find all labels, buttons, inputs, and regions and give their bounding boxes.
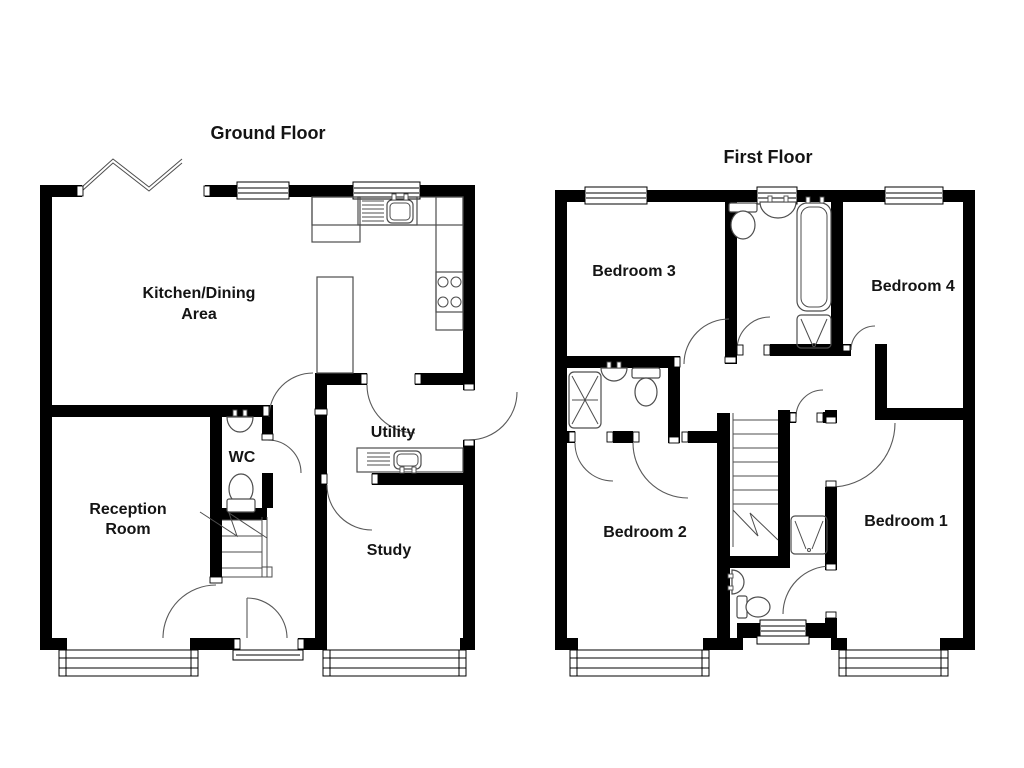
door-swing-bedroom3 <box>684 319 729 364</box>
bay-window <box>59 650 198 676</box>
floorplan-drawing: Ground Floor Kitchen/Dining Area Recepti… <box>0 0 1024 768</box>
ground-walls <box>40 185 475 650</box>
door-swing-wc <box>268 440 301 473</box>
door-swing-bedroom4 <box>851 326 875 350</box>
door-swing-reception <box>163 585 216 638</box>
room-label-reception-line2: Room <box>105 521 150 538</box>
appliance <box>312 197 360 242</box>
shower-icon <box>791 516 827 554</box>
door-swing-bedroom1 <box>831 423 895 487</box>
stairs-break-line <box>733 510 778 540</box>
shower-icon <box>797 315 831 348</box>
floorplan-canvas: Ground Floor Kitchen/Dining Area Recepti… <box>0 0 1024 768</box>
bay-window <box>323 650 466 676</box>
room-label-utility: Utility <box>371 424 416 441</box>
ground-floor-title: Ground Floor <box>211 123 326 143</box>
room-label-bedroom3: Bedroom 3 <box>592 263 676 280</box>
window-sill <box>757 636 809 644</box>
room-label-bedroom4: Bedroom 4 <box>871 278 955 295</box>
toilet-icon <box>227 474 255 512</box>
bath-icon <box>797 197 831 311</box>
room-label-wc: WC <box>229 449 256 466</box>
wall-cap <box>204 186 210 196</box>
door-swing-kitchen <box>269 373 313 417</box>
toilet-icon <box>632 368 660 406</box>
door-swing-study <box>327 485 372 530</box>
first-floor-plan: First Floor Bedroom 3 Bedroom 4 Bedroom … <box>555 147 975 676</box>
room-label-reception-line1: Reception <box>89 501 166 518</box>
kitchen-island <box>317 277 353 373</box>
wall-cap <box>77 186 83 196</box>
bay-window <box>839 650 948 676</box>
window <box>585 187 647 204</box>
room-label-kitchen-line1: Kitchen/Dining <box>143 285 256 302</box>
door-swing-bedroom1-wc <box>783 566 831 614</box>
door-swing-ensuite <box>575 443 613 481</box>
room-label-bedroom2: Bedroom 2 <box>603 524 687 541</box>
shower-icon <box>569 372 601 428</box>
front-door-sill <box>233 650 303 660</box>
room-label-bedroom1: Bedroom 1 <box>864 513 948 530</box>
window <box>885 187 943 204</box>
kitchen-counter <box>312 197 463 373</box>
stairs <box>733 413 778 547</box>
bay-window <box>570 650 709 676</box>
ground-floor-plan: Ground Floor Kitchen/Dining Area Recepti… <box>40 123 517 676</box>
toilet-icon <box>737 596 770 618</box>
utility-sink-icon <box>357 448 463 473</box>
first-floor-title: First Floor <box>724 147 813 167</box>
door-swing-bedroom2 <box>633 443 688 498</box>
bifold-line <box>82 163 182 191</box>
window <box>757 620 809 644</box>
window <box>237 182 289 199</box>
toilet-icon <box>729 203 757 239</box>
bifold-opening <box>77 159 210 196</box>
wc-sink-icon <box>728 570 744 594</box>
door-swing-front <box>247 598 287 638</box>
door-swing-rear-door <box>469 392 517 440</box>
bifold-line <box>82 159 182 187</box>
room-label-kitchen-line2: Area <box>181 306 217 323</box>
room-label-study: Study <box>367 542 412 559</box>
hob-icon <box>436 272 463 312</box>
